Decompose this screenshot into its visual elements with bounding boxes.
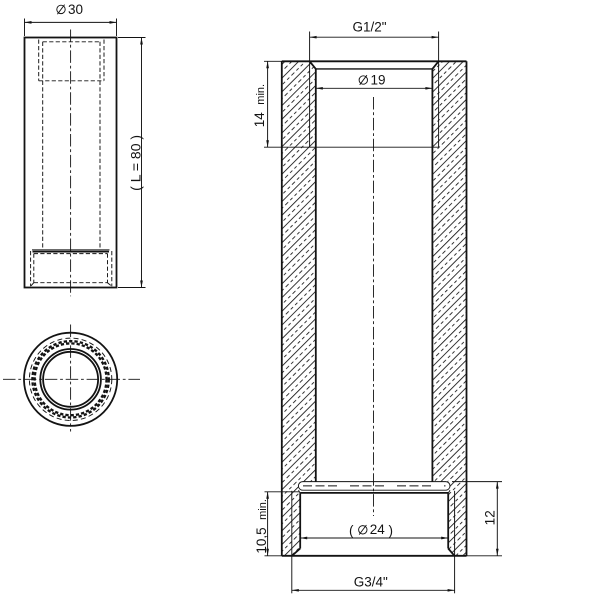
svg-text:G3/4": G3/4" <box>354 574 388 589</box>
svg-text:19: 19 <box>371 73 386 88</box>
svg-text:G1/2": G1/2" <box>352 19 386 34</box>
svg-text:): ) <box>389 523 394 538</box>
svg-text:10,5 min.: 10,5 min. <box>254 499 269 554</box>
svg-text:14 min.: 14 min. <box>252 84 267 127</box>
svg-text:24: 24 <box>370 522 386 537</box>
svg-text:( L = 80 ): ( L = 80 ) <box>127 135 143 191</box>
svg-text:(: ( <box>349 523 354 538</box>
svg-text:12: 12 <box>482 510 497 525</box>
svg-text:30: 30 <box>68 2 83 17</box>
